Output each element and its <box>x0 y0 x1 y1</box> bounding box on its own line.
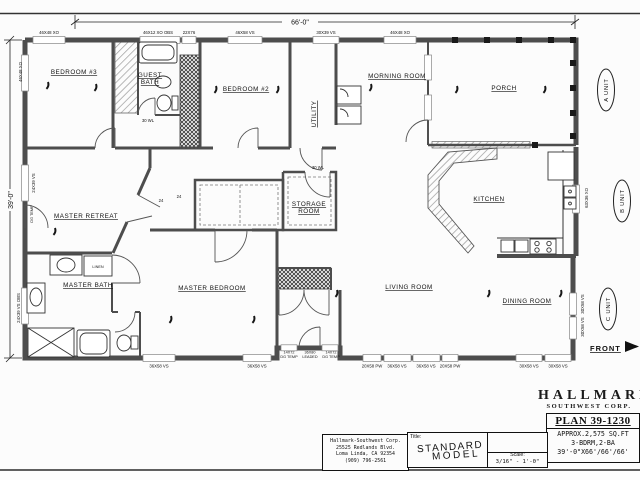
room-label-dining-room: DINING ROOM <box>503 298 552 305</box>
room-label-kitchen: KITCHEN <box>473 196 504 203</box>
title-value-2: MODEL <box>432 448 481 462</box>
front-arrow-icon <box>625 341 639 352</box>
empty-box <box>487 432 548 454</box>
window-label: 30X39 VS <box>316 30 335 35</box>
scale-value: 3/16" - 1'-0" <box>488 459 547 465</box>
window-label: 46X48 XO <box>39 30 59 35</box>
address-line: (909) 796-2561 <box>323 458 408 465</box>
window-label: 63X36 XO <box>584 187 589 207</box>
window-label: 30X58 VS <box>580 294 585 313</box>
unit-label-b: B UNIT <box>620 189 626 213</box>
plan-number: PLAN 39-1230 <box>547 414 639 429</box>
window-label: 22X76 <box>183 30 196 35</box>
company-subtitle: SOUTHWEST CORP. <box>538 403 640 410</box>
title-label: Title: <box>410 434 421 440</box>
window-label: 30X58 VS <box>580 317 585 336</box>
window-label: 14X72 <box>326 351 337 355</box>
dimension-width: 66'-0" <box>291 20 309 27</box>
entry-tile-hatch <box>277 268 331 289</box>
floor-plan-sheet: 66'-0" 39'-0" <box>0 0 640 480</box>
scale-box: Scale: 3/16" - 1'-0" <box>487 452 548 468</box>
title-box: Title: STANDARD MODEL <box>407 432 489 468</box>
room-label-storage-1: STORAGE <box>292 201 326 208</box>
porch-posts <box>452 37 576 148</box>
kitchen-sink <box>501 240 514 252</box>
plan-spec-sqft: APPROX.2,575 SQ.FT <box>547 430 639 439</box>
unit-label-a: A UNIT <box>604 78 610 101</box>
window-label: 30X58 VS <box>548 364 567 369</box>
front-label: FRONT <box>590 344 621 353</box>
room-label-porch: PORCH <box>491 85 516 92</box>
window-label: 46X12 XO OBS <box>143 30 173 35</box>
window-label: DG TEMP <box>280 355 298 359</box>
window-label: 24X39 VS OBS <box>16 293 21 323</box>
room-label-master-bedroom: MASTER BEDROOM <box>178 285 246 292</box>
window-label: 36X58 VS <box>149 364 168 369</box>
room-label-bedroom3: BEDROOM #3 <box>51 69 97 76</box>
window-label: 36X58 VS <box>387 364 406 369</box>
room-label-linen: LINEN <box>92 265 103 269</box>
plan-info-box: PLAN 39-1230 APPROX.2,575 SQ.FT 3-BDRM,2… <box>546 413 640 463</box>
room-label-master-retreat: MASTER RETREAT <box>54 213 118 220</box>
window-label: 20X58 PW <box>440 364 461 369</box>
door-label: 30 WL <box>312 165 325 170</box>
window-label: 36X80 <box>305 351 316 355</box>
window-label: 36X58 VS <box>416 364 435 369</box>
window-label: 46X48 XO <box>390 30 410 35</box>
room-label-guest-bath-2: BATH <box>141 79 159 86</box>
address-line: Loma Linda, CA 92354 <box>323 451 408 458</box>
window-label: DG TEMP <box>322 355 340 359</box>
window-label: 30X58 VS <box>519 364 538 369</box>
company-address-box: Hallmark-Southwest Corp. 25525 Redlands … <box>322 434 409 471</box>
door-label: 24 <box>177 194 182 199</box>
door-label: 24 <box>159 198 164 203</box>
window-label: 36X58 VS <box>247 364 266 369</box>
refrigerator <box>548 152 574 180</box>
window-label: 20X58 PW <box>362 364 383 369</box>
guest-toilet <box>172 96 178 110</box>
unit-label-c: C UNIT <box>606 297 612 321</box>
room-label-utility: UTILITY <box>311 100 318 127</box>
door-label: 30 WL <box>142 118 155 123</box>
plan-spec-dims: 39'-0"X66'/66'/66' <box>547 448 639 457</box>
window-note: DG TEMP <box>30 205 34 223</box>
address-line: 25525 Redlands Blvd. <box>323 445 408 452</box>
window-label: 24X39 VS <box>31 173 36 192</box>
master-toilet <box>131 336 138 349</box>
room-label-bedroom2: BEDROOM #2 <box>223 86 269 93</box>
room-label-living-room: LIVING ROOM <box>385 284 432 291</box>
address-line: Hallmark-Southwest Corp. <box>323 438 408 445</box>
company-logo: HALLMARK SOUTHWEST CORP. <box>538 388 640 410</box>
room-label-morning-room: MORNING ROOM <box>368 73 426 80</box>
stove <box>530 239 556 254</box>
room-label-storage-2: ROOM <box>298 208 320 215</box>
chase-hatch <box>180 55 200 148</box>
plan-spec-rooms: 3-BDRM,2-BA <box>547 439 639 448</box>
door-labels: 30 WL 30 WL 24 24 <box>142 118 325 203</box>
window-label: LEADED <box>302 355 317 359</box>
door-swings <box>25 98 428 348</box>
window-label: 46X58 VS <box>235 30 254 35</box>
window-label: 14X72 <box>284 351 295 355</box>
dimension-height: 39'-0" <box>8 191 15 209</box>
window-label: 46X48 XO <box>18 61 23 81</box>
room-label-master-bath: MASTER BATH <box>63 282 113 289</box>
company-name: HALLMARK <box>538 388 640 404</box>
wardrobe-hatch <box>115 42 138 113</box>
room-label-guest-bath-1: GUEST <box>138 72 162 79</box>
